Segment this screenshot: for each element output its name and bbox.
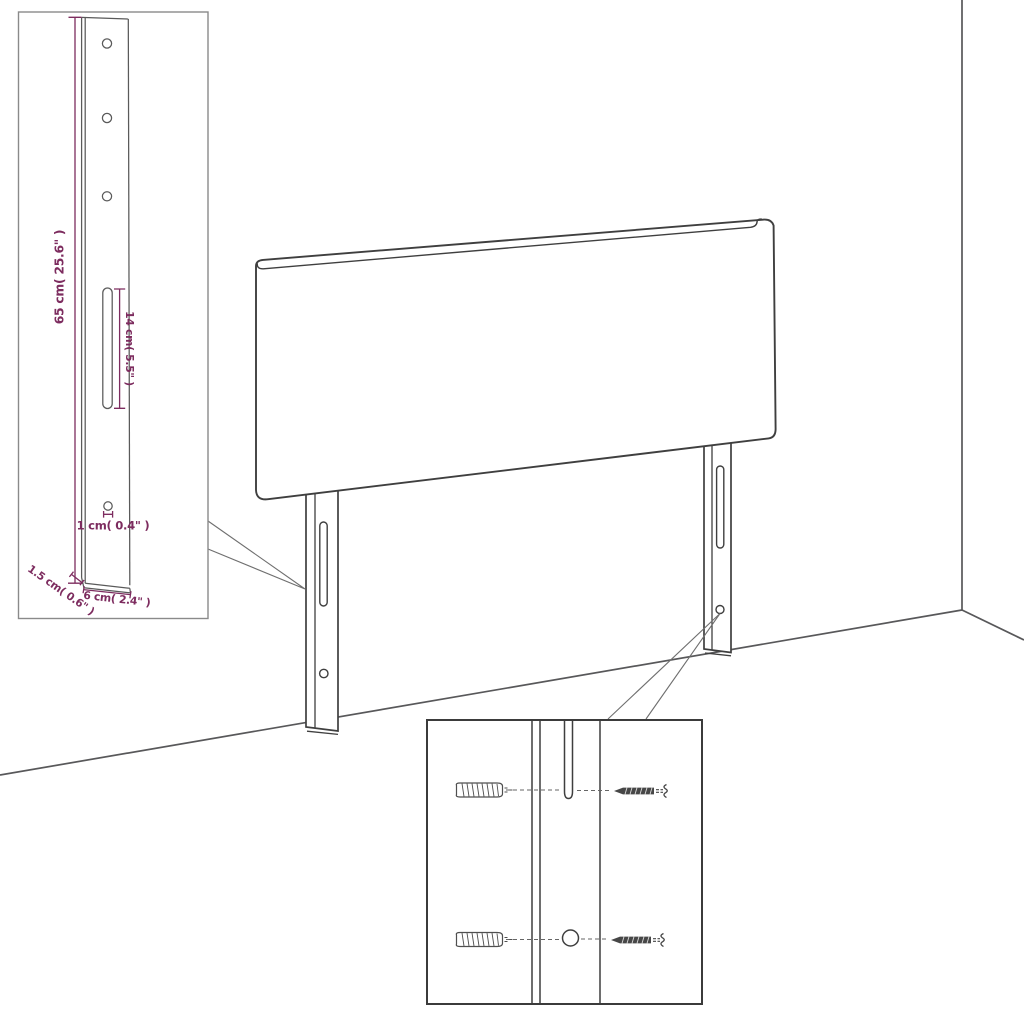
headboard-left-leg (306, 476, 338, 734)
left-leg-slot (320, 522, 327, 606)
left-leg-hole (320, 669, 328, 677)
headboard-right-leg (704, 432, 731, 656)
mounting-hole (563, 930, 579, 946)
headboard-panel (256, 219, 776, 499)
dim-height-label: 65 cm( 25.6" ) (52, 230, 67, 325)
headboard-diagram: 65 cm( 25.6" ) 14 cm( 5.5" ) 1 cm( 0.4" … (0, 0, 1024, 1024)
left-leg-bottom-face (307, 731, 338, 734)
callout-lines-mounting-inset (608, 614, 720, 720)
bracket-inset: 65 cm( 25.6" ) 14 cm( 5.5" ) 1 cm( 0.4" … (19, 12, 209, 619)
right-leg-hole (716, 606, 724, 614)
callout-lines-bracket-inset (208, 521, 305, 589)
floor-line-right (962, 610, 1024, 640)
right-leg-bottom-face (705, 653, 731, 656)
dim-slot-length-label: 14 cm( 5.5" ) (123, 311, 136, 386)
diagram-stage: 65 cm( 25.6" ) 14 cm( 5.5" ) 1 cm( 0.4" … (0, 0, 1024, 1024)
dim-hole-diameter-label: 1 cm( 0.4" ) (77, 519, 150, 533)
right-leg-slot (717, 466, 724, 548)
mounting-inset (427, 720, 702, 1004)
